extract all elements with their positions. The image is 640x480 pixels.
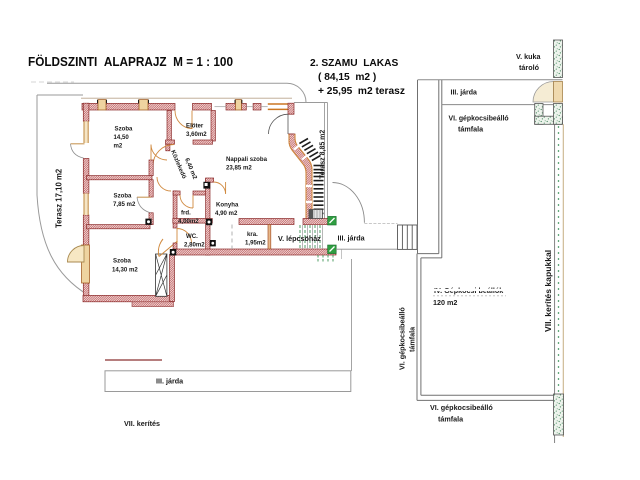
svg-text:2,80m2: 2,80m2 (184, 242, 205, 249)
svg-text:III. járda: III. járda (156, 377, 184, 386)
svg-text:támfala: támfala (438, 415, 464, 424)
svg-text:4,90 m2: 4,90 m2 (215, 210, 238, 217)
svg-text:m2: m2 (114, 143, 123, 150)
svg-text:frd.: frd. (181, 210, 191, 217)
svg-text:Szoba: Szoba (115, 126, 134, 133)
svg-text:14,50: 14,50 (114, 134, 130, 141)
svg-text:VI. gépkocsibeálló: VI. gépkocsibeálló (449, 116, 509, 123)
svg-text:23,85 m2: 23,85 m2 (226, 165, 252, 172)
svg-text:WC.: WC. (186, 233, 198, 240)
svg-text:III. járda: III. járda (451, 90, 478, 97)
svg-text:3,60m2: 3,60m2 (186, 131, 207, 138)
svg-text:tároló: tároló (519, 63, 540, 72)
svg-text:+ 25,95 m2 terasz: + 25,95 m2 terasz (318, 86, 405, 97)
svg-text:VI. gépkocsibeálló: VI. gépkocsibeálló (398, 307, 407, 370)
svg-text:Terasz 17,10 m2: Terasz 17,10 m2 (55, 168, 64, 228)
svg-text:kra.: kra. (247, 231, 258, 238)
svg-text:120 m2: 120 m2 (433, 298, 457, 307)
svg-text:VI. gépkocsibeálló: VI. gépkocsibeálló (430, 403, 493, 412)
svg-text:2. SZAMU LAKAS: 2. SZAMU LAKAS (310, 58, 399, 69)
svg-text:támfala: támfala (458, 125, 484, 134)
svg-text:Konyha: Konyha (216, 202, 239, 209)
svg-text:Elöter: Elöter (186, 123, 204, 130)
svg-text:VII. kerítés: VII. kerítés (124, 419, 160, 428)
svg-text:14,30 m2: 14,30 m2 (112, 267, 138, 274)
svg-text:( 84,15 m2 ): ( 84,15 m2 ) (318, 72, 376, 83)
svg-text:Nappali szoba: Nappali szoba (226, 156, 268, 163)
svg-text:támfala: támfala (408, 326, 417, 352)
svg-text:III. járda: III. járda (338, 234, 366, 243)
svg-text:4,00m2: 4,00m2 (178, 218, 199, 225)
svg-text:Szoba: Szoba (113, 258, 132, 265)
svg-text:Terasz 8,85 m2: Terasz 8,85 m2 (320, 130, 327, 179)
svg-text:VII. kerítés kapukkal: VII. kerítés kapukkal (543, 250, 553, 332)
svg-text:Szoba: Szoba (114, 193, 133, 200)
svg-text:1,95m2: 1,95m2 (245, 240, 266, 247)
svg-text:V. kuka: V. kuka (516, 52, 542, 61)
svg-text:7,85 m2: 7,85 m2 (113, 201, 136, 208)
svg-text:V. lépcsöház: V. lépcsöház (278, 234, 321, 243)
svg-text:FÖLDSZINTI ALAPRAJZ M = 1 :: FÖLDSZINTI ALAPRAJZ M = 1 : 100 (28, 54, 233, 69)
